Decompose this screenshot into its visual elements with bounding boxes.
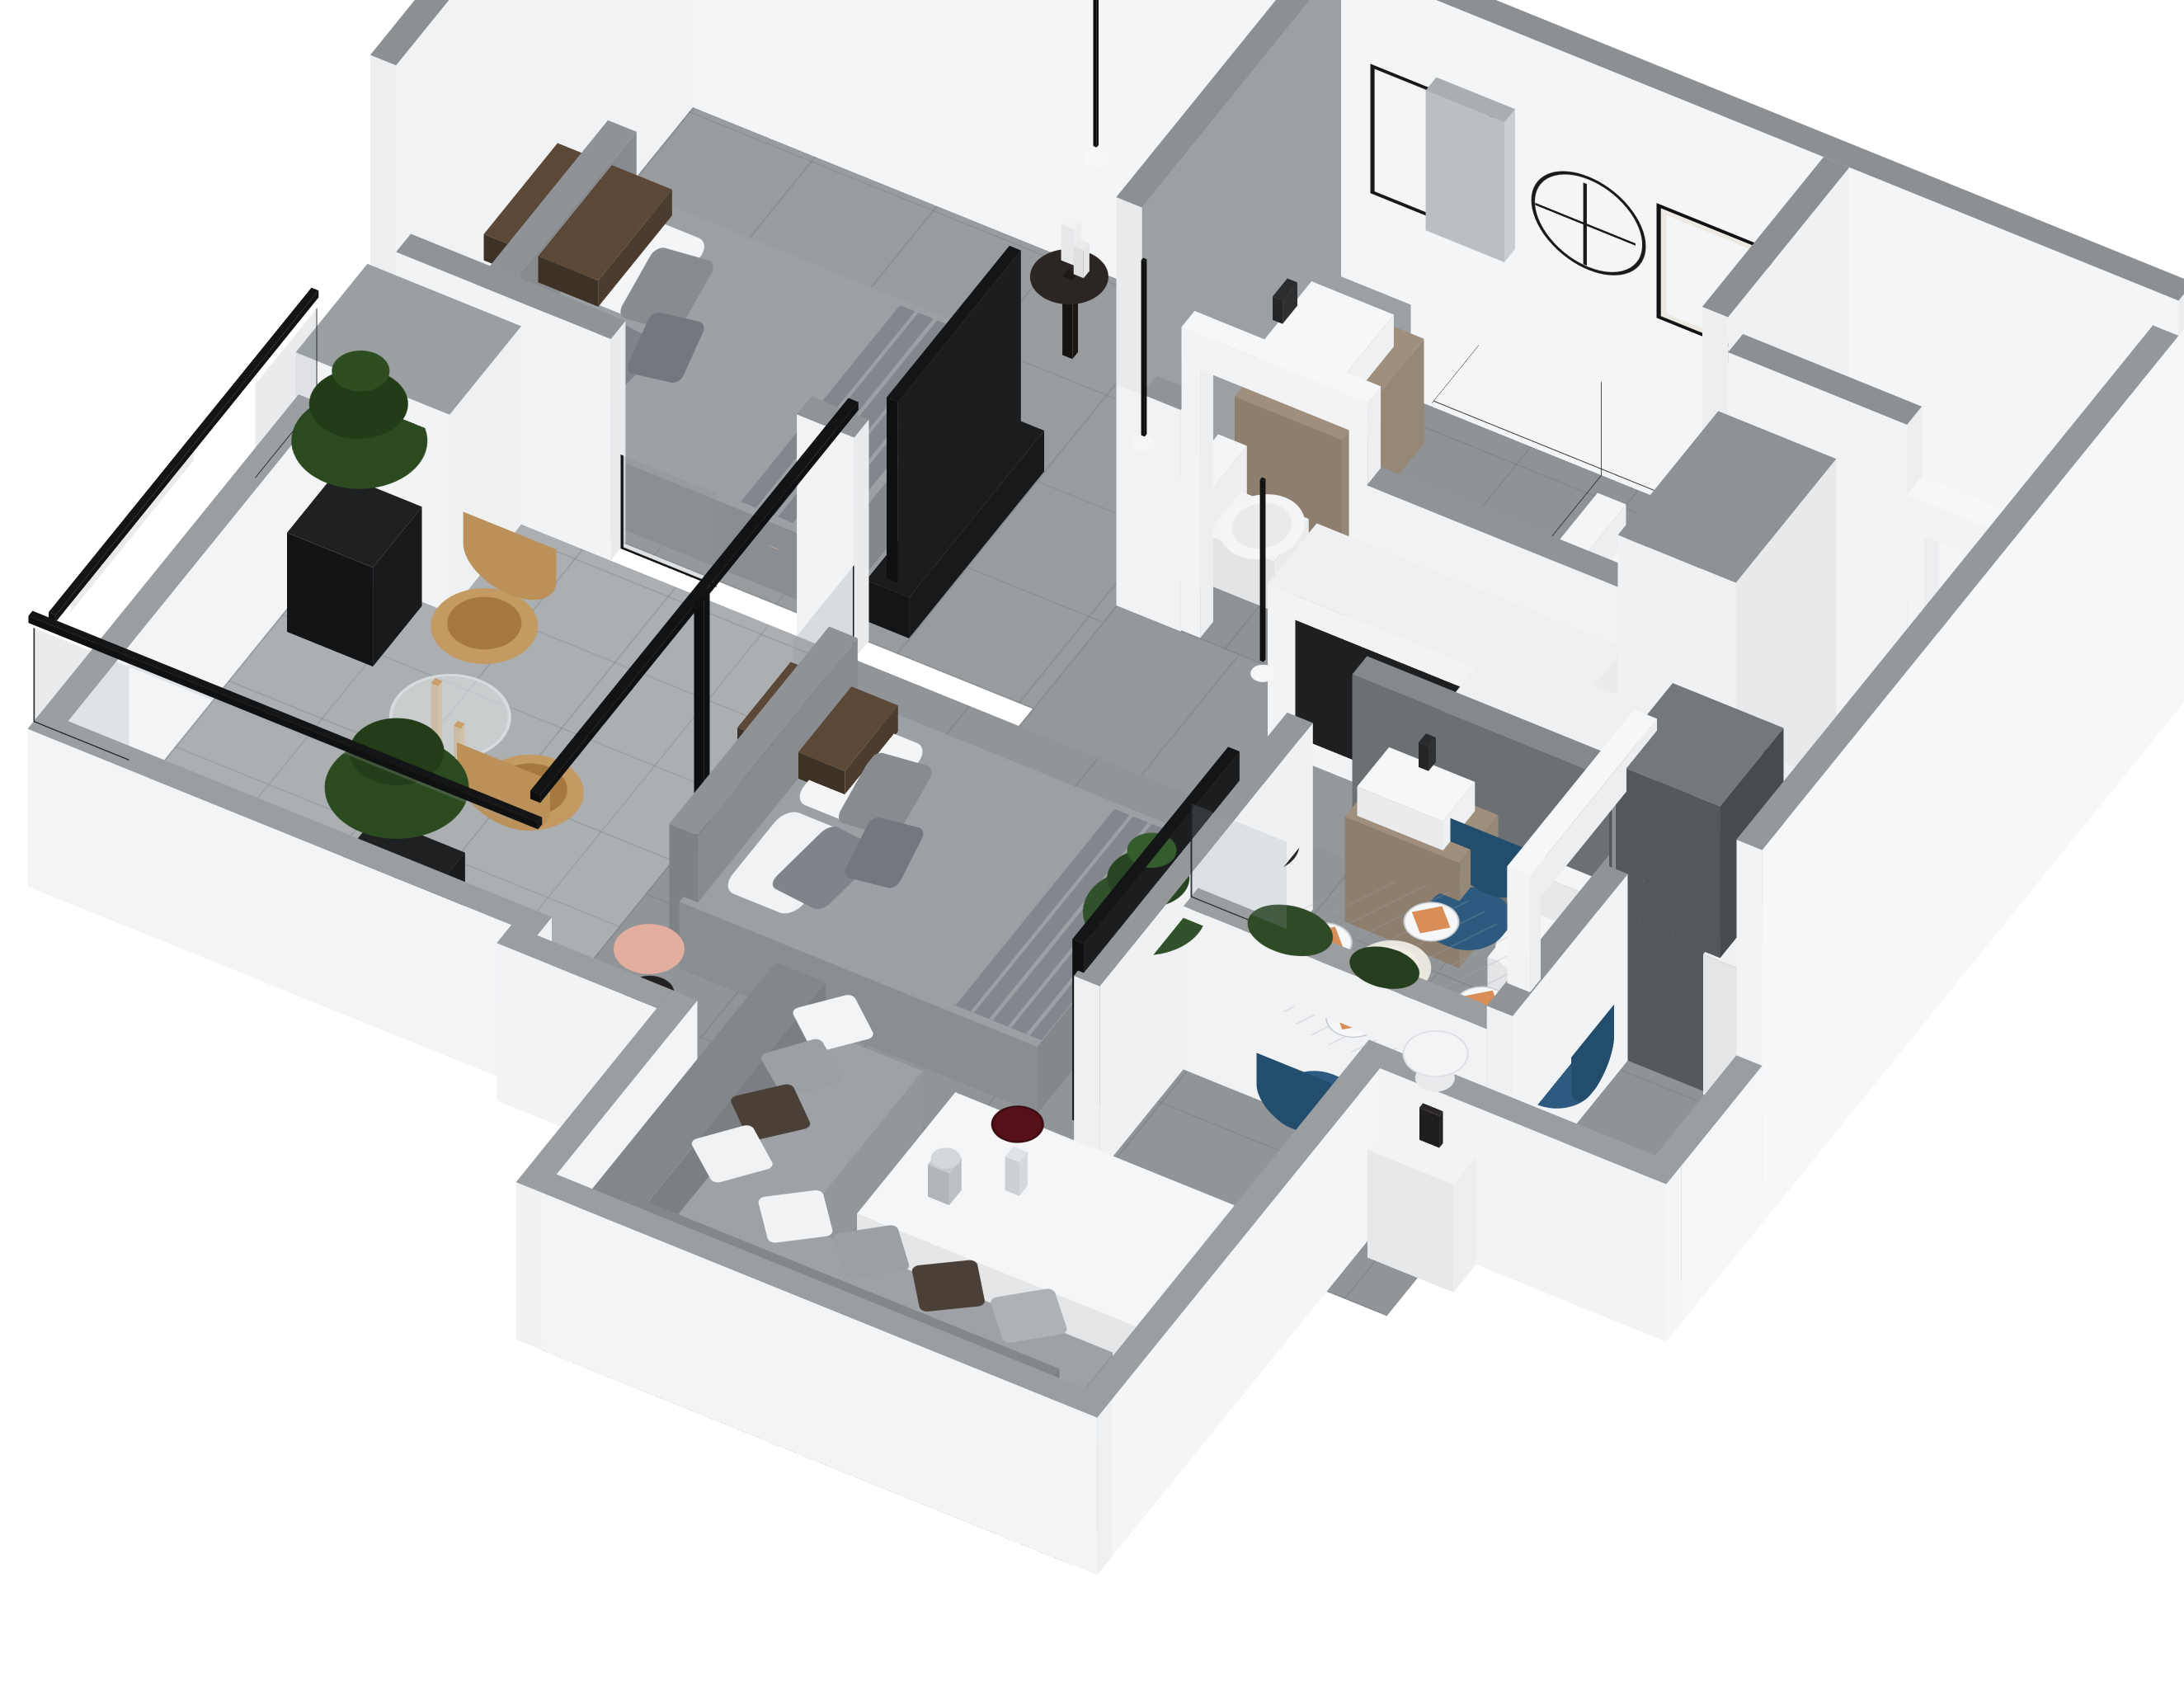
parapet-dining-south-face-east [1666,1166,1681,1342]
bath1-faucet-face-south [1273,297,1283,324]
pendant3-stem-face-east [1145,259,1146,436]
pendant1-stem-face-east [1097,0,1099,148]
bath1-door-jamb-a-face-south [1182,327,1201,638]
bed1-south-wall-b-face-east [854,419,869,659]
parapet-living-south-face-east [1097,1399,1112,1575]
sofa-pillow-5 [757,1189,834,1244]
bath1-mirror-cabinet-face-east [1504,109,1515,262]
tv1-panel-face-south [887,398,898,583]
rose-vase-glass-face-south [1005,1156,1019,1196]
bath1-south-wall-a-face-south [1116,384,1180,631]
pendant2-stem-face-east [1264,478,1265,662]
parapet-living-west-face-south [516,1182,542,1350]
floorplan-3d-render [0,0,2184,1624]
bed1-vase-a-face-south [1061,224,1075,266]
bath2-faucet-face-south [1419,742,1429,771]
sofa-pillow-6 [832,1224,911,1279]
sofa-pillow-7 [911,1260,986,1312]
bed1-vase-b-face-south [1074,246,1084,278]
page-background: { "meta": { "title": "3D isometric apart… [0,0,2184,1624]
